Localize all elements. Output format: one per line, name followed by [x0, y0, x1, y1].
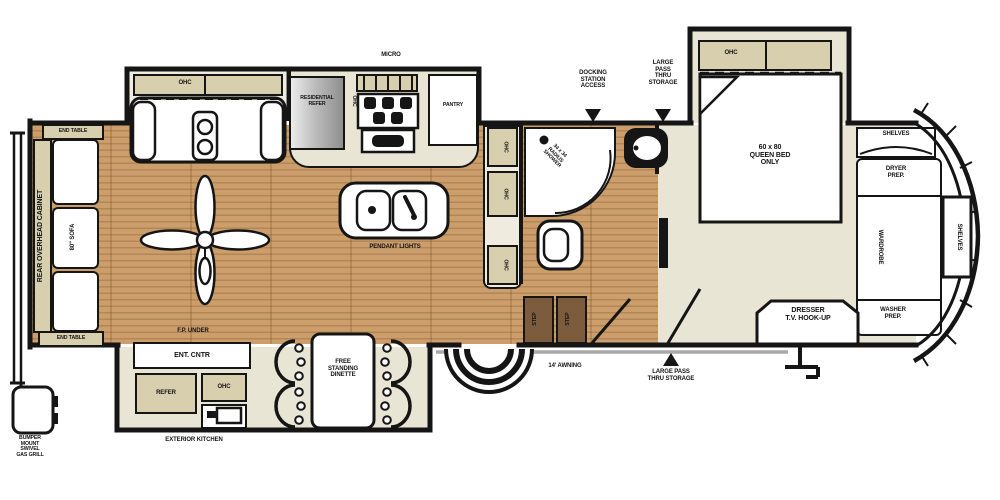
step-right-label: STEP: [566, 299, 576, 339]
micro-label: MICRO: [366, 52, 416, 59]
bath-ohc-label-2: OHC: [498, 180, 508, 209]
bath-ohc-label-1: OHC: [498, 133, 508, 162]
fp-under-label: F.P. UNDER: [148, 328, 238, 335]
sofa-label: 80" SOFA: [70, 192, 80, 282]
theater-ohc-label: OHC: [150, 80, 220, 87]
microwave: [356, 74, 418, 92]
end-table-top: END TABLE: [42, 124, 104, 140]
docking-station-label: DOCKING STATION ACCESS: [565, 70, 621, 90]
shelves-top-label: SHELVES: [858, 131, 934, 138]
dryer-prep-label: DRYER PREP.: [866, 166, 926, 179]
step-left-label: STEP: [533, 299, 543, 339]
wardrobe-label: WARDROBE: [873, 202, 883, 292]
docking-arrow: [585, 109, 601, 122]
dresser-label: DRESSER T.V. HOOK-UP: [760, 307, 856, 322]
bedroom-ohc-label: OHC: [700, 50, 762, 57]
residential-refer-label: RESIDENTIAL REFER: [290, 96, 344, 107]
end-table-bottom: END TABLE: [38, 331, 104, 347]
landing-gear: [785, 345, 818, 377]
awning-label: 14' AWNING: [533, 363, 597, 370]
passthru-top-arrow: [655, 109, 671, 122]
pass-thru-top-label: LARGE PASS THRU STORAGE: [640, 60, 686, 86]
rear-ladder: [10, 133, 25, 388]
exterior-ohc: OHC: [201, 373, 247, 402]
dinette-label: FREE STANDING DINETTE: [314, 359, 372, 379]
pantry-label: PANTRY: [428, 103, 478, 109]
range-ohc-label: OHC: [346, 86, 356, 116]
exterior-sink-cabinet: [201, 404, 247, 429]
pass-thru-bottom-label: LARGE PASS THRU STORAGE: [625, 369, 717, 382]
entry-steps: [446, 349, 532, 392]
pendant-lights-label: PENDANT LIGHTS: [345, 244, 445, 251]
gas-grill-label: BUMPER MOUNT SWIVEL GAS GRILL: [0, 436, 60, 459]
shelves-side-label: SHELVES: [952, 207, 962, 267]
washer-prep-label: WASHER PREP.: [860, 307, 926, 320]
residential-refrigerator: [289, 76, 345, 150]
bath-ohc-label-3: OHC: [498, 251, 508, 280]
pantry-cabinet: [428, 74, 478, 146]
entertainment-center: ENT. CNTR: [133, 342, 251, 369]
queen-bed-label: 60 x 80 QUEEN BED ONLY: [720, 144, 820, 167]
rv-floorplan: END TABLE END TABLE ENT. CNTR REFER OHC: [0, 0, 1000, 500]
rear-overhead-cabinet-label: REAR OVERHEAD CABINET: [37, 166, 47, 306]
exterior-refer: REFER: [135, 373, 197, 414]
passthru-bottom-arrow: [663, 353, 679, 366]
exterior-kitchen-label: EXTERIOR KITCHEN: [138, 437, 250, 444]
gas-grill: [13, 387, 58, 433]
